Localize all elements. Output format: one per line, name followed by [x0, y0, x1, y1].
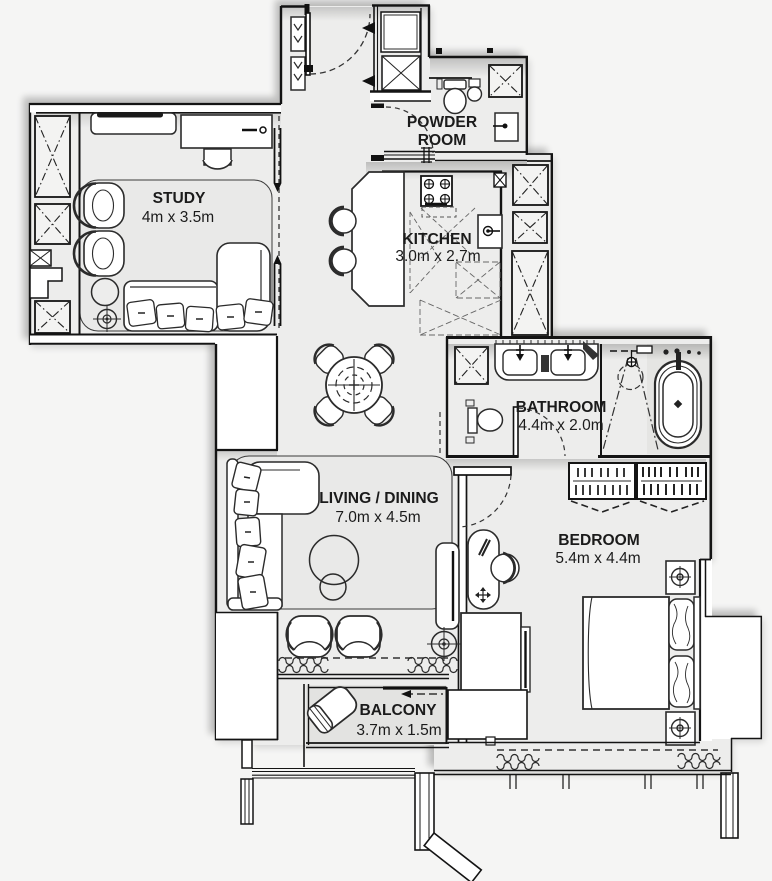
svg-text:LIVING / DINING: LIVING / DINING	[319, 490, 439, 507]
svg-text:BATHROOM: BATHROOM	[516, 399, 607, 416]
svg-text:ROOM: ROOM	[418, 132, 467, 149]
svg-text:7.0m x 4.5m: 7.0m x 4.5m	[335, 509, 420, 526]
svg-text:BALCONY: BALCONY	[359, 702, 437, 719]
svg-text:5.4m x 4.4m: 5.4m x 4.4m	[555, 550, 640, 567]
svg-text:KITCHEN: KITCHEN	[402, 231, 471, 248]
svg-text:3.7m x 1.5m: 3.7m x 1.5m	[356, 722, 441, 739]
svg-text:4m x 3.5m: 4m x 3.5m	[142, 209, 214, 226]
svg-text:3.0m x 2.7m: 3.0m x 2.7m	[395, 248, 480, 265]
svg-text:STUDY: STUDY	[153, 190, 206, 207]
svg-text:POWDER: POWDER	[407, 114, 477, 131]
svg-text:4.4m x 2.0m: 4.4m x 2.0m	[518, 417, 603, 434]
svg-text:BEDROOM: BEDROOM	[558, 532, 639, 549]
